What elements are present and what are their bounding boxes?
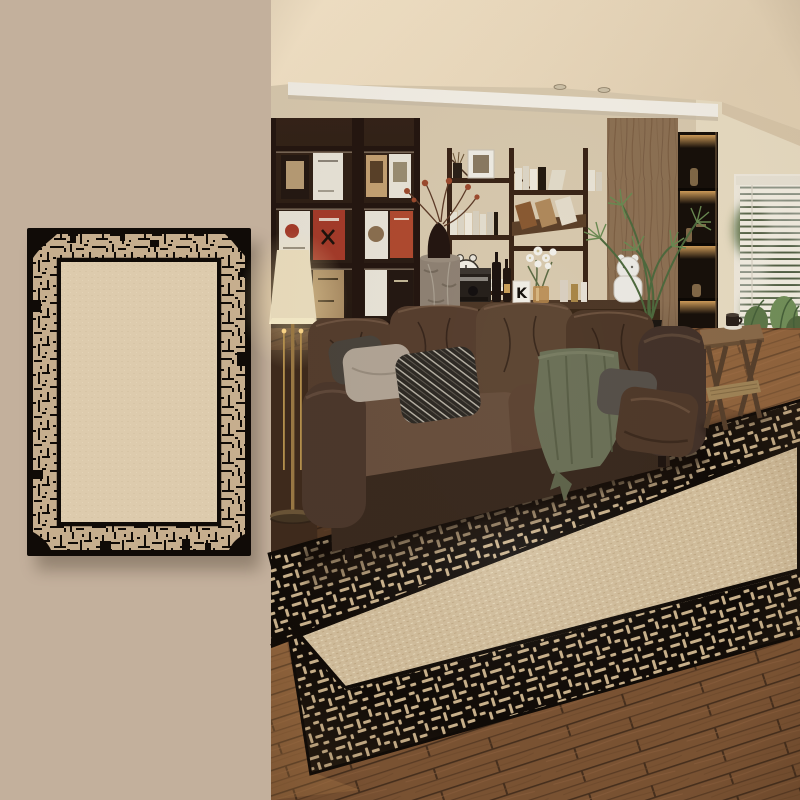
product-panel [0, 0, 271, 800]
product-rug-swatch [27, 228, 260, 570]
living-room-photo: K [238, 0, 800, 800]
composite-image: K [0, 0, 800, 800]
composite-canvas: K [0, 0, 800, 800]
rug-center-field-texture [61, 262, 217, 522]
photo-vignette [271, 0, 800, 800]
